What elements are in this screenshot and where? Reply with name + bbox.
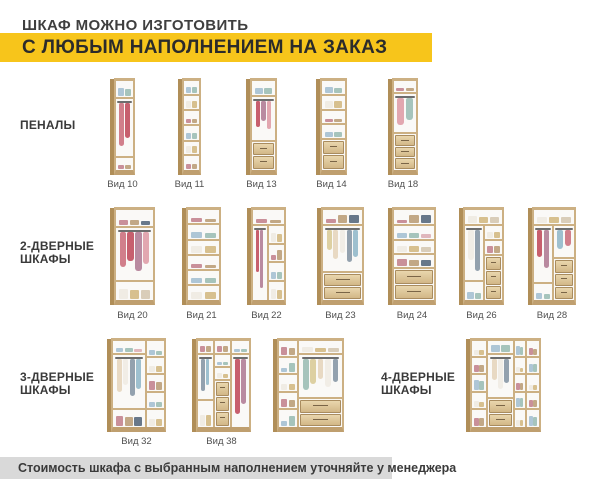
hang-zone — [253, 226, 267, 300]
cabinet-vid20 — [110, 207, 155, 305]
cabinet-vid14 — [316, 78, 347, 175]
items-zone — [147, 358, 164, 375]
hang-zone — [252, 97, 275, 142]
cabinet-interior — [532, 207, 576, 305]
garment — [340, 230, 345, 253]
cabinet-columns — [322, 81, 345, 170]
garment — [206, 359, 209, 385]
folded-item — [206, 346, 211, 352]
garment — [310, 359, 316, 385]
folded-item — [186, 146, 191, 153]
items-zone — [527, 410, 539, 427]
garment — [256, 230, 259, 272]
drawer — [395, 147, 415, 158]
garment — [120, 232, 126, 267]
folded-item — [549, 217, 559, 223]
garment — [325, 359, 331, 388]
folded-item — [277, 234, 282, 242]
cabinet-columns — [394, 81, 416, 170]
cabinet-column — [322, 81, 345, 170]
folded-item — [479, 418, 484, 426]
cabinet-label-vid10: Вид 10 — [107, 179, 137, 190]
folded-item — [192, 133, 197, 139]
items-zone — [116, 282, 153, 300]
cabinet-label-vid14: Вид 14 — [316, 179, 346, 190]
hang-zone — [323, 226, 362, 273]
folded-item — [149, 419, 155, 426]
items-zone — [394, 81, 416, 94]
section-label-line: ШКАФЫ — [20, 384, 94, 397]
folded-item — [186, 101, 191, 109]
items-zone — [269, 245, 285, 263]
items-zone — [299, 341, 342, 355]
page-title: ШКАФ МОЖНО ИЗГОТОВИТЬ — [22, 17, 248, 34]
cabinet-columns — [323, 210, 362, 300]
items-zone — [215, 368, 230, 381]
cabinet-label-vid32: Вид 32 — [121, 436, 151, 447]
items-zone — [147, 393, 164, 410]
folded-item — [223, 362, 228, 365]
garments — [301, 359, 340, 396]
items-zone — [116, 81, 133, 99]
cabinet-column — [184, 81, 199, 170]
garment — [544, 230, 549, 268]
items-zone — [322, 111, 345, 125]
folded-item — [141, 221, 150, 225]
folded-item — [205, 265, 216, 269]
folded-item — [533, 417, 537, 426]
items-zone — [527, 375, 539, 392]
garment — [406, 98, 413, 119]
garment — [353, 230, 358, 256]
footer-note: Стоимость шкафа с выбранным наполнением … — [18, 461, 456, 475]
cabinet-column — [252, 81, 275, 170]
garments — [115, 359, 143, 406]
folded-item — [281, 384, 287, 390]
cabinet-column — [534, 226, 554, 300]
items-zone — [232, 341, 249, 355]
folded-item — [206, 415, 211, 426]
folded-item — [334, 101, 342, 108]
cabinet-column — [527, 341, 539, 427]
items-zone — [269, 263, 285, 281]
garment — [261, 101, 265, 121]
folded-item — [200, 346, 205, 352]
folded-item — [479, 217, 488, 223]
hang-zone — [299, 355, 342, 400]
cabinet-label-vid22: Вид 22 — [251, 310, 281, 321]
cabinet-vid21 — [182, 207, 221, 305]
cabinet-vid23 — [317, 207, 364, 305]
drawer — [395, 270, 433, 284]
items-zone — [113, 410, 145, 427]
drawer — [216, 397, 229, 411]
drawer — [323, 141, 344, 155]
folded-item — [149, 366, 155, 373]
drawers-zone — [554, 259, 574, 300]
cabinet-label-vid24: Вид 24 — [397, 310, 427, 321]
cabinet-d4x — [466, 338, 541, 432]
garment — [127, 232, 133, 261]
cabinet-label-vid23: Вид 23 — [325, 310, 355, 321]
garments — [396, 98, 414, 130]
folded-item — [474, 365, 479, 372]
folded-item — [191, 292, 202, 299]
cabinet-label-vid21: Вид 21 — [186, 310, 216, 321]
garment — [241, 359, 245, 405]
cabinet-vid11 — [178, 78, 201, 175]
folded-item — [191, 232, 202, 237]
garment — [260, 230, 263, 288]
items-zone — [527, 393, 539, 410]
folded-item — [487, 246, 493, 253]
folded-item — [520, 368, 523, 373]
items-zone — [515, 410, 525, 427]
items-zone — [472, 358, 486, 375]
drawer — [253, 143, 274, 156]
folded-item — [479, 402, 484, 407]
folded-item — [421, 260, 431, 267]
folded-item — [205, 278, 216, 283]
cabinet-columns — [116, 81, 133, 170]
items-zone — [394, 255, 434, 269]
folded-item — [536, 293, 542, 299]
drawers-zone — [299, 399, 342, 427]
page-subtitle-highlight: С ЛЮБЫМ НАПОЛНЕНИЕМ НА ЗАКАЗ — [0, 33, 432, 62]
cabinet-label-vid13: Вид 13 — [246, 179, 276, 190]
folded-item — [289, 363, 295, 372]
garment — [557, 230, 563, 249]
garments — [118, 232, 151, 278]
folded-item — [149, 402, 155, 407]
cabinet-interior — [470, 338, 541, 432]
folded-item — [338, 215, 348, 223]
folded-item — [125, 348, 133, 351]
folded-item — [409, 260, 419, 267]
folded-item — [125, 89, 131, 96]
section-label-d4: 4-ДВЕРНЫЕШКАФЫ — [381, 371, 455, 397]
cabinet-label-vid20: Вид 20 — [117, 310, 147, 321]
items-zone — [188, 210, 219, 225]
folded-item — [217, 373, 222, 377]
items-zone — [322, 125, 345, 139]
folded-item — [281, 399, 287, 407]
items-zone — [184, 156, 199, 170]
drawer — [486, 257, 501, 270]
folded-item — [325, 101, 333, 108]
items-zone — [394, 241, 434, 255]
folded-item — [205, 233, 216, 238]
cabinet-label-vid11: Вид 11 — [175, 179, 205, 190]
drawer — [555, 274, 573, 286]
garment — [201, 359, 204, 391]
drawers-zone — [394, 269, 434, 300]
folded-item — [149, 350, 155, 355]
cabinet-columns — [465, 226, 502, 300]
folded-item — [134, 417, 142, 426]
cabinet-column — [472, 341, 488, 427]
folded-item — [516, 367, 519, 372]
folded-item — [200, 415, 205, 426]
garment — [135, 232, 141, 271]
hang-zone — [394, 94, 416, 134]
cabinet-columns — [534, 226, 574, 300]
cabinet-interior — [392, 78, 418, 175]
folded-item — [125, 165, 131, 169]
folded-item — [421, 234, 431, 238]
items-zone — [472, 393, 486, 410]
items-zone — [488, 341, 513, 355]
folded-item — [156, 402, 162, 406]
cabinet-column — [116, 210, 153, 300]
folded-item — [516, 420, 519, 426]
cabinet-vid28 — [528, 207, 576, 305]
section-label-d2: 2-ДВЕРНЫЕШКАФЫ — [20, 240, 94, 266]
items-zone — [515, 358, 525, 375]
items-zone — [188, 256, 219, 271]
items-zone — [515, 393, 525, 410]
items-zone — [485, 226, 502, 241]
items-zone — [184, 142, 199, 156]
folded-item — [125, 417, 133, 426]
drawer — [253, 156, 274, 169]
folded-item — [529, 416, 533, 426]
garments — [234, 359, 247, 425]
folded-item — [289, 416, 295, 426]
folded-item — [326, 219, 336, 223]
items-zone — [116, 158, 133, 170]
folded-item — [474, 350, 479, 356]
cabinet-columns — [394, 210, 434, 300]
folded-item — [520, 383, 523, 390]
folded-item — [118, 88, 124, 96]
section-label-line: ШКАФЫ — [20, 253, 94, 266]
folded-item — [325, 119, 333, 123]
folded-item — [474, 380, 479, 389]
cabinet-interior — [182, 78, 201, 175]
folded-item — [119, 289, 128, 299]
garment — [347, 230, 352, 262]
folded-item — [130, 290, 139, 299]
garment — [119, 103, 124, 146]
garment — [468, 230, 473, 260]
catalog-poster: ШКАФ МОЖНО ИЗГОТОВИТЬ С ЛЮБЫМ НАПОЛНЕНИЕ… — [0, 0, 600, 500]
cabinet-label-vid26: Вид 26 — [466, 310, 496, 321]
folded-item — [468, 216, 477, 223]
items-zone — [184, 111, 199, 126]
folded-item — [474, 401, 479, 407]
garment — [565, 230, 571, 245]
folded-item — [516, 346, 519, 355]
drawer — [395, 285, 433, 299]
folded-item — [533, 400, 537, 406]
items-zone — [394, 210, 434, 226]
folded-item — [192, 87, 197, 93]
page-subtitle: С ЛЮБЫМ НАПОЛНЕНИЕМ НА ЗАКАЗ — [22, 37, 387, 59]
drawer — [216, 412, 229, 426]
folded-item — [191, 218, 202, 222]
folded-item — [544, 294, 550, 299]
items-zone — [322, 81, 345, 96]
cabinet-columns — [188, 210, 219, 300]
cabinet-vid24 — [388, 207, 436, 305]
cabinet-column — [323, 210, 362, 300]
cabinet-columns — [198, 341, 249, 427]
cabinet-column — [269, 226, 285, 300]
items-zone — [465, 282, 483, 300]
folded-item — [334, 119, 342, 123]
garment — [117, 359, 122, 392]
folded-item — [156, 351, 162, 355]
drawers-zone — [394, 134, 416, 170]
folded-item — [119, 220, 128, 225]
cabinet-interior — [250, 78, 277, 175]
folded-item — [491, 345, 500, 352]
folded-item — [223, 346, 228, 352]
drawer — [555, 287, 573, 299]
drawers-zone — [252, 142, 275, 170]
cabinet-columns — [253, 226, 284, 300]
folded-item — [255, 88, 263, 94]
cabinet-vid26 — [459, 207, 504, 305]
drawer — [324, 287, 361, 299]
folded-item — [192, 164, 197, 169]
folded-item — [241, 349, 247, 352]
items-zone — [252, 81, 275, 97]
folded-item — [490, 217, 499, 223]
cabinet-column — [215, 341, 232, 427]
folded-item — [205, 292, 216, 299]
folded-item — [516, 383, 519, 390]
cabinet-interior — [320, 78, 347, 175]
folded-item — [116, 348, 124, 352]
hang-zone — [488, 355, 513, 400]
hang-zone — [554, 226, 574, 259]
folded-item — [192, 119, 197, 123]
cabinet-vid32 — [107, 338, 166, 432]
cabinet-interior — [463, 207, 504, 305]
garment — [492, 359, 497, 381]
folded-item — [479, 381, 484, 390]
garment — [136, 359, 141, 389]
garments — [255, 230, 265, 298]
items-zone — [188, 241, 219, 256]
folded-item — [479, 350, 484, 355]
folded-item — [156, 366, 162, 372]
cabinet-column — [488, 341, 515, 427]
cabinet-columns — [279, 341, 342, 427]
folded-item — [315, 348, 326, 352]
folded-item — [409, 215, 419, 223]
folded-item — [186, 119, 191, 124]
folded-item — [334, 88, 342, 93]
garment — [256, 101, 260, 127]
folded-item — [397, 246, 407, 252]
folded-item — [156, 382, 162, 390]
cabinet-column — [515, 341, 527, 427]
folded-item — [397, 220, 407, 224]
folded-item — [334, 132, 342, 137]
folded-item — [520, 420, 523, 425]
cabinet-columns — [472, 341, 539, 427]
cabinet-interior — [111, 338, 166, 432]
items-zone — [527, 341, 539, 358]
folded-item — [533, 385, 537, 390]
folded-item — [223, 374, 228, 378]
folded-item — [474, 418, 479, 426]
items-zone — [394, 226, 434, 240]
garments — [118, 103, 131, 154]
garment — [318, 359, 324, 379]
folded-item — [561, 217, 571, 223]
cabinet-columns — [116, 210, 153, 300]
cabinet-interior — [114, 78, 135, 175]
items-zone — [184, 96, 199, 111]
items-zone — [188, 286, 219, 300]
folded-item — [501, 345, 510, 351]
cabinet-d3x — [273, 338, 344, 432]
garment — [537, 230, 542, 257]
cabinet-interior — [196, 338, 251, 432]
items-zone — [116, 210, 153, 228]
folded-item — [186, 133, 191, 139]
garment — [143, 232, 149, 264]
folded-item — [516, 398, 519, 407]
folded-item — [349, 215, 359, 223]
cabinet-column — [394, 81, 416, 170]
garments — [467, 230, 481, 277]
folded-item — [205, 219, 216, 223]
folded-item — [191, 264, 202, 268]
folded-item — [277, 290, 282, 299]
cabinet-interior — [186, 207, 221, 305]
items-zone — [198, 341, 213, 355]
garment — [235, 359, 239, 415]
folded-item — [409, 246, 419, 252]
section-label-d3: 3-ДВЕРНЫЕШКАФЫ — [20, 371, 94, 397]
items-zone — [147, 410, 164, 427]
garment — [504, 359, 509, 384]
items-zone — [323, 210, 362, 226]
cabinet-interior — [251, 207, 286, 305]
folded-item — [217, 346, 222, 352]
hang-zone — [113, 355, 145, 410]
items-zone — [515, 375, 525, 392]
cabinet-label-vid18: Вид 18 — [388, 179, 418, 190]
items-zone — [515, 341, 525, 358]
folded-item — [487, 232, 493, 238]
items-zone — [322, 96, 345, 111]
items-zone — [188, 271, 219, 285]
folded-item — [421, 215, 431, 223]
cabinet-vid18 — [388, 78, 418, 175]
items-zone — [472, 341, 486, 358]
folded-item — [529, 348, 533, 355]
hang-zone — [116, 99, 133, 158]
hang-zone — [116, 228, 153, 282]
garments — [325, 230, 360, 269]
cabinet-column — [394, 210, 434, 300]
drawer — [216, 382, 229, 396]
drawer — [489, 414, 512, 426]
cabinet-column — [299, 341, 342, 427]
items-zone — [198, 401, 213, 427]
folded-item — [205, 246, 216, 253]
folded-item — [529, 364, 533, 373]
cabinet-interior — [392, 207, 436, 305]
folded-item — [302, 347, 313, 351]
items-zone — [527, 358, 539, 375]
